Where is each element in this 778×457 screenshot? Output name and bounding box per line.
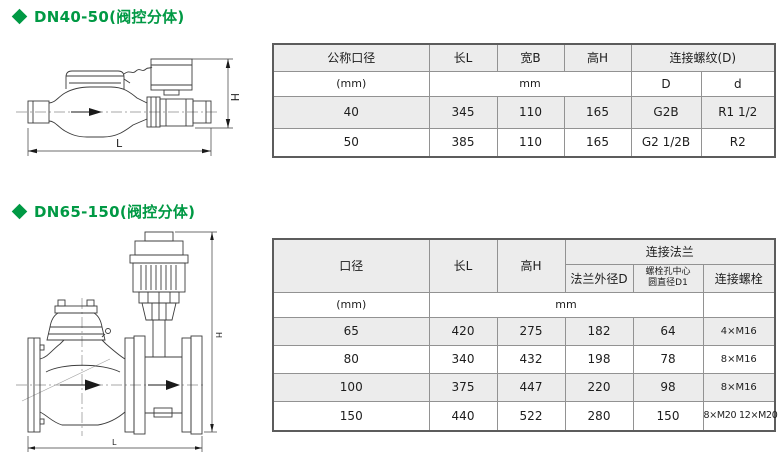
dimension-label-L: L [112, 438, 117, 447]
meter-body [40, 340, 125, 425]
cell-bolt-circle: 150 [633, 401, 703, 431]
meter-drawing-dn40-50: L H [14, 52, 244, 167]
cell-bolt-circle: 64 [633, 317, 703, 345]
spec-table-dn65-150: 口径 长L 高H 连接法兰 法兰外径D 螺栓孔中心 圆直径D1 连接螺栓 (mm… [272, 238, 776, 432]
cell-height: 432 [497, 345, 565, 373]
cell-flange-od: 182 [565, 317, 633, 345]
col-header-nominal-diameter: 公称口径 [273, 44, 429, 71]
meter-drawing-dn65-150: L H [14, 228, 249, 455]
table-header-row: 公称口径 长L 宽B 高H 连接螺纹(D) [273, 44, 775, 71]
dimension-length: L [28, 436, 202, 452]
section-title-dn40-50: DN40-50(阀控分体) [14, 6, 185, 27]
bolt-circle-line2: 圆直径D1 [634, 278, 703, 289]
cell-bolt-circle: 98 [633, 373, 703, 401]
cell-height: 447 [497, 373, 565, 401]
cell-length: 375 [429, 373, 497, 401]
cell-width: 110 [497, 128, 564, 157]
cell-thread-d: R1 1/2 [701, 96, 775, 128]
diamond-bullet-icon [12, 204, 28, 220]
cell-dn: 150 [273, 401, 429, 431]
section-title-text: DN40-50(阀控分体) [34, 6, 185, 27]
dimension-label-H: H [228, 93, 241, 101]
table-unit-row: (mm) mm D d [273, 71, 775, 96]
flow-arrow [71, 108, 102, 116]
cell-bolts: 8×M16 [703, 345, 775, 373]
cell-height: 522 [497, 401, 565, 431]
dimension-label-H: H [214, 332, 223, 338]
valve-pipe [145, 357, 182, 417]
unit-dims: mm [429, 292, 703, 317]
table-row-dn150: 150 440 522 280 150 8×M20 12×M20 [273, 401, 775, 431]
valve-actuator-box [151, 59, 192, 95]
cell-flange-od: 220 [565, 373, 633, 401]
col-header-length: 长L [429, 239, 497, 292]
col-header-bolt-circle: 螺栓孔中心 圆直径D1 [633, 264, 703, 292]
cell-dn: 100 [273, 373, 429, 401]
ball-valve-body [160, 99, 193, 126]
section-title-text: DN65-150(阀控分体) [34, 201, 195, 222]
col-header-diameter: 口径 [273, 239, 429, 292]
col-header-flange-group: 连接法兰 [565, 239, 775, 264]
cell-flange-od: 198 [565, 345, 633, 373]
cell-width: 110 [497, 96, 564, 128]
cell-length: 340 [429, 345, 497, 373]
cell-dn: 40 [273, 96, 429, 128]
register-head [47, 300, 111, 340]
table-row-dn50: 50 385 110 165 G2 1/2B R2 [273, 128, 775, 157]
cell-bolts: 8×M20 12×M20 [703, 401, 775, 431]
dimension-height: H [192, 59, 241, 128]
cell-thread-d: R2 [701, 128, 775, 157]
table-row-dn80: 80 340 432 198 78 8×M16 [273, 345, 775, 373]
flow-arrow-meter [60, 380, 101, 391]
section-title-dn65-150: DN65-150(阀控分体) [14, 201, 195, 222]
signal-conduit [124, 67, 152, 74]
dimension-label-L: L [116, 137, 123, 150]
col-header-width: 宽B [497, 44, 564, 71]
unit-diameter: (mm) [273, 71, 429, 96]
cell-dn: 50 [273, 128, 429, 157]
table-row-dn100: 100 375 447 220 98 8×M16 [273, 373, 775, 401]
empty-cell [703, 292, 775, 317]
col-header-flange-od: 法兰外径D [565, 264, 633, 292]
table-row-dn40: 40 345 110 165 G2B R1 1/2 [273, 96, 775, 128]
cell-length: 420 [429, 317, 497, 345]
cell-length: 440 [429, 401, 497, 431]
valve-actuator [130, 232, 188, 357]
cell-thread-D: G2 1/2B [631, 128, 701, 157]
col-header-thread-D: D [631, 71, 701, 96]
col-header-thread-d: d [701, 71, 775, 96]
col-header-thread-group: 连接螺纹(D) [631, 44, 775, 71]
table-header-row-1: 口径 长L 高H 连接法兰 [273, 239, 775, 264]
col-header-height: 高H [497, 239, 565, 292]
cell-length: 345 [429, 96, 497, 128]
cell-length: 385 [429, 128, 497, 157]
cell-height: 275 [497, 317, 565, 345]
cell-bolts: 4×M16 [703, 317, 775, 345]
table-unit-row: (mm) mm [273, 292, 775, 317]
spec-table-dn40-50: 公称口径 长L 宽B 高H 连接螺纹(D) (mm) mm D d 40 345… [272, 43, 776, 158]
cell-dn: 80 [273, 345, 429, 373]
cell-bolts: 8×M16 [703, 373, 775, 401]
table-row-dn65: 65 420 275 182 64 4×M16 [273, 317, 775, 345]
cell-height: 165 [564, 96, 631, 128]
cell-bolt-circle: 78 [633, 345, 703, 373]
cell-thread-D: G2B [631, 96, 701, 128]
unit-dims: mm [429, 71, 631, 96]
flow-arrow-valve [148, 380, 180, 390]
section-line [22, 359, 110, 401]
unit-diameter: (mm) [273, 292, 429, 317]
cell-height: 165 [564, 128, 631, 157]
dimension-length: L [28, 128, 211, 156]
cell-flange-od: 280 [565, 401, 633, 431]
cell-dn: 65 [273, 317, 429, 345]
col-header-height: 高H [564, 44, 631, 71]
diamond-bullet-icon [12, 9, 28, 25]
bolt-circle-line1: 螺栓孔中心 [634, 267, 703, 278]
col-header-bolts: 连接螺栓 [703, 264, 775, 292]
catalog-page: DN40-50(阀控分体) [0, 0, 778, 457]
col-header-length: 长L [429, 44, 497, 71]
register-head [66, 71, 130, 89]
